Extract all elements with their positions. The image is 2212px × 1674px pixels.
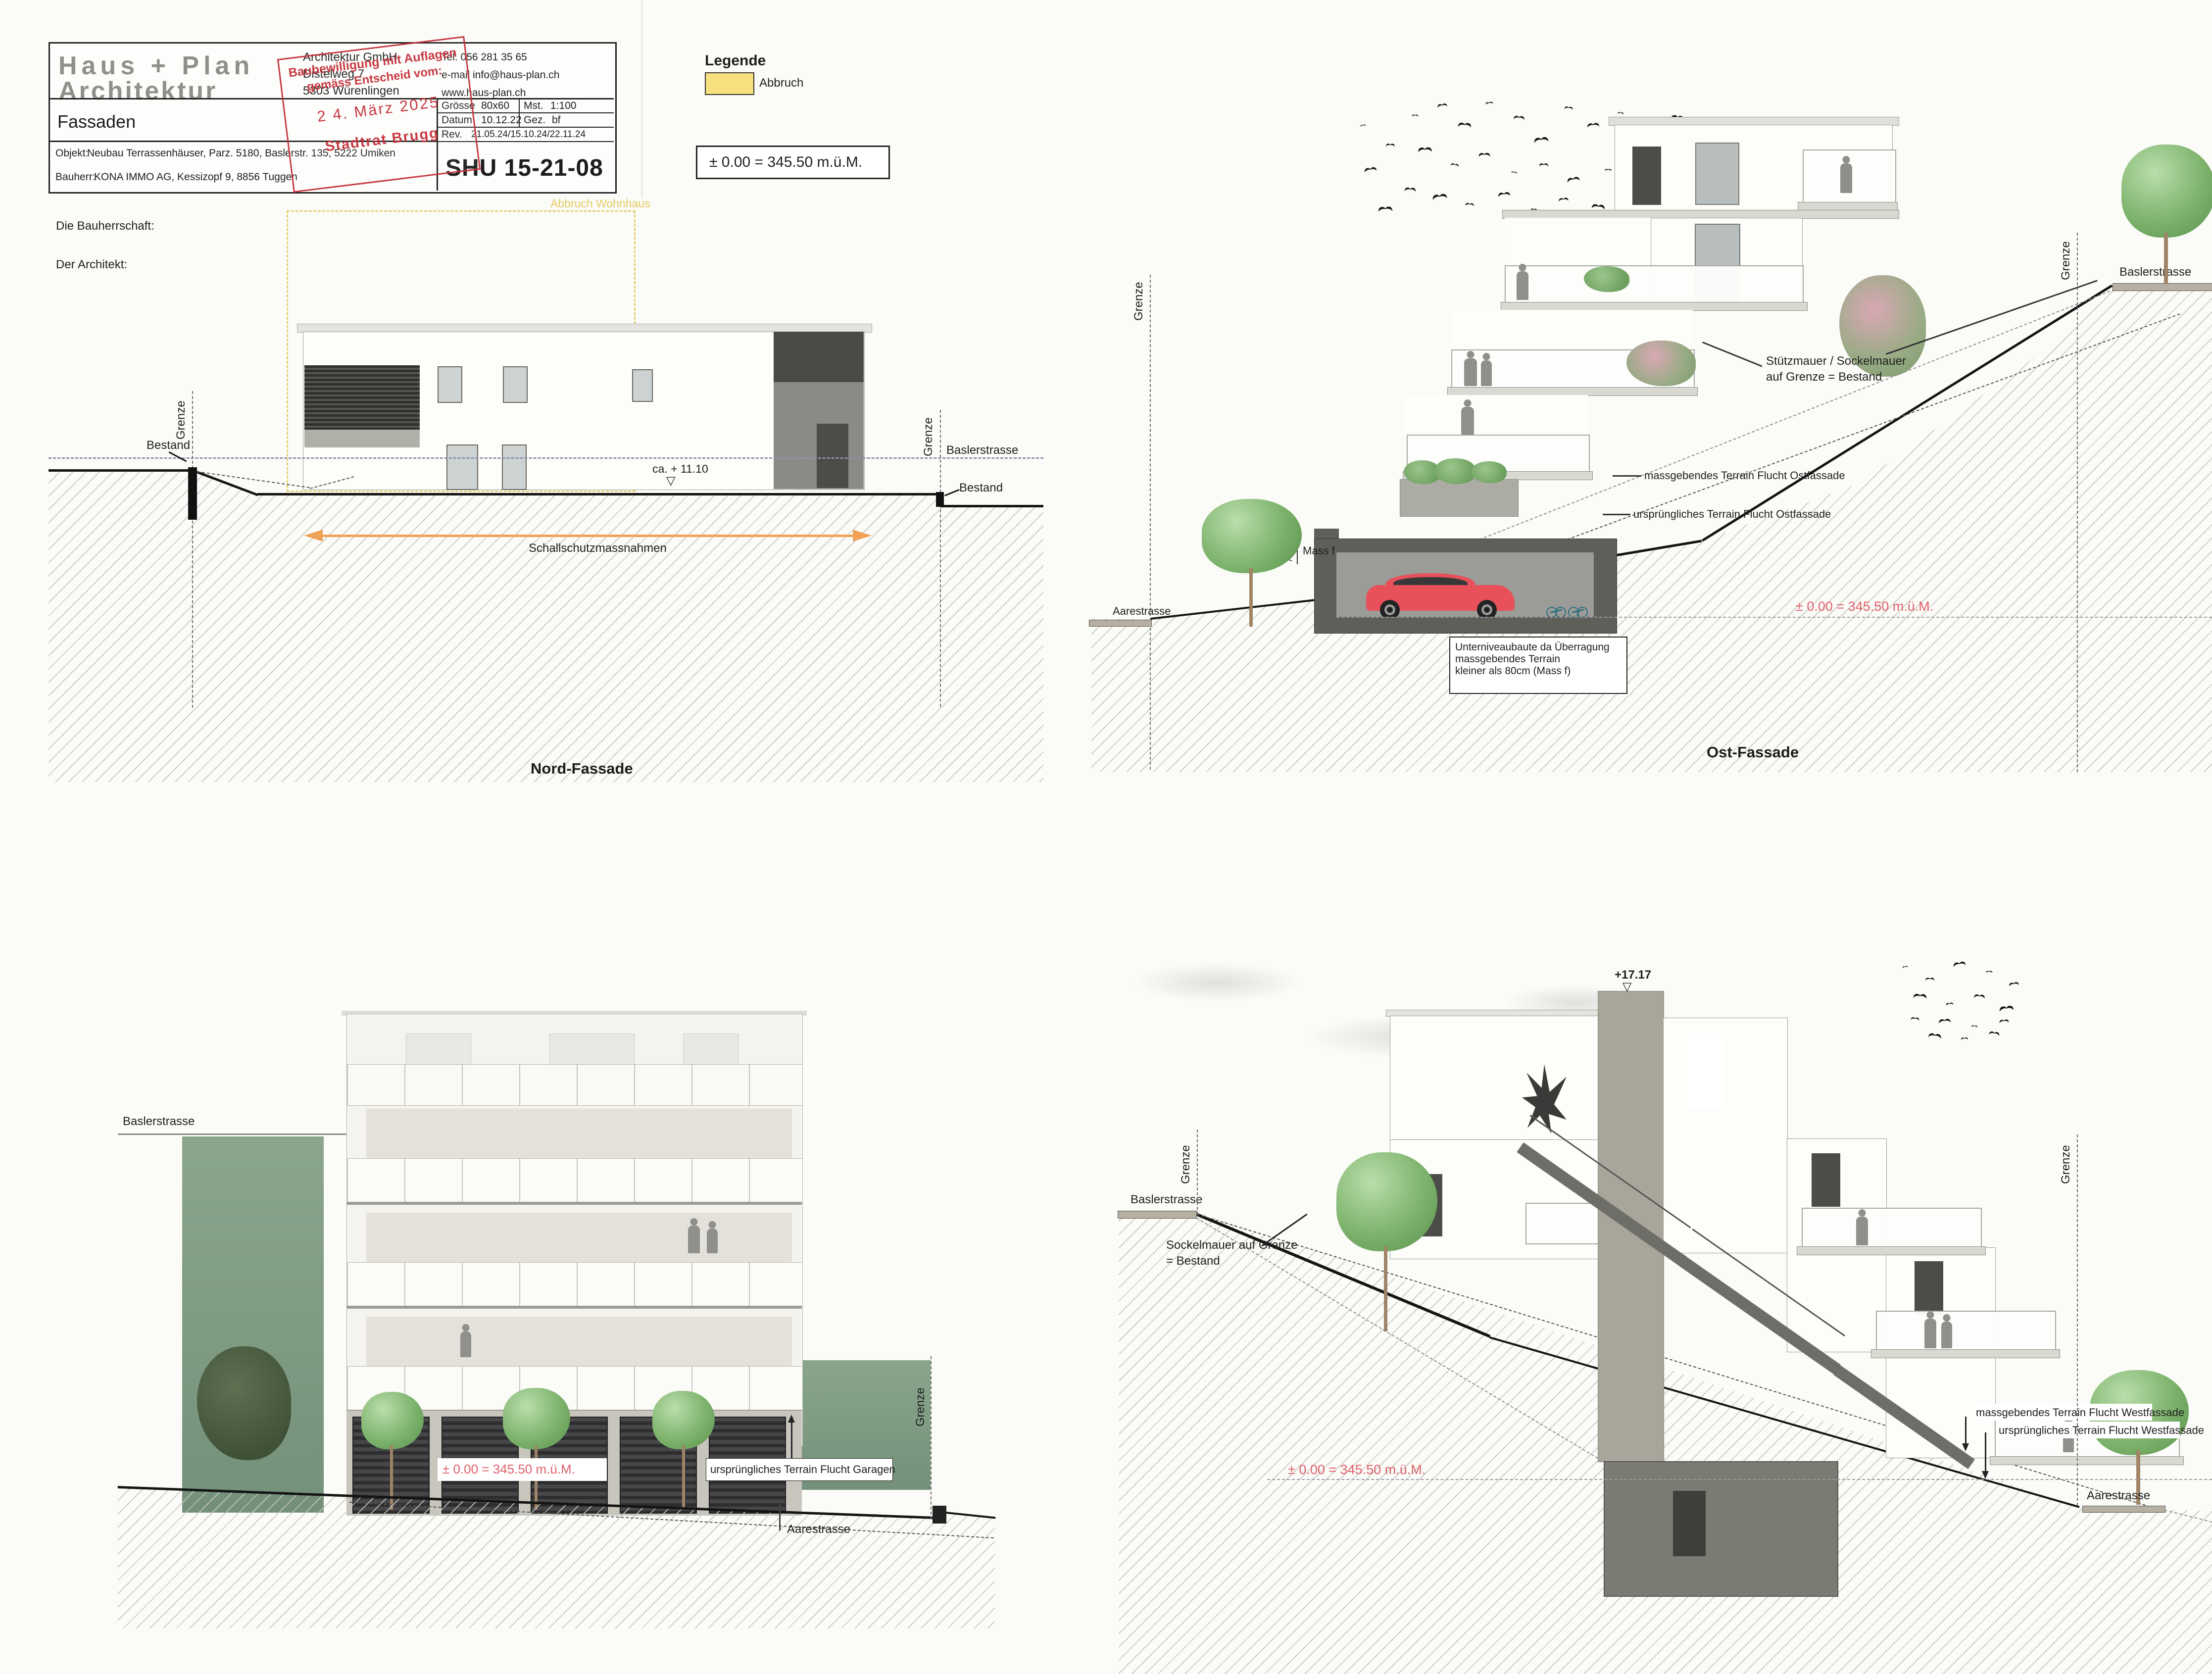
bird-icon <box>1479 153 1490 159</box>
westel-floor1-recess <box>366 1109 792 1158</box>
mst-value: 1:100 <box>550 100 577 112</box>
nord-dark-block-upper <box>774 332 864 382</box>
nord-grenze-left-label: Grenze <box>174 400 188 440</box>
westel-terrain-note-box: ursprüngliches Terrain Flucht Garagen <box>706 1458 893 1481</box>
bird-icon <box>1961 1037 1968 1041</box>
westel-wall-base <box>933 1506 946 1524</box>
bird-icon <box>1360 124 1366 128</box>
unterniveau-line2: massgebendes Terrain <box>1455 653 1622 665</box>
nord-grenze-right-label: Grenze <box>922 417 935 456</box>
unterniveau-note-box: Unterniveaubaute da Überragung massgeben… <box>1449 637 1627 694</box>
ost-baslerstrasse-road <box>2113 283 2212 291</box>
westel-baslerstrasse-label: Baslerstrasse <box>123 1115 195 1129</box>
westsec-door-3 <box>1915 1261 1943 1315</box>
westsec-terrace2-slab <box>1871 1349 2060 1358</box>
nord-window-2 <box>503 366 528 403</box>
stamp-authority: Stadtrat Brugg <box>289 121 475 159</box>
bird-icon <box>1514 115 1524 121</box>
westel-roof-railing <box>346 1064 803 1106</box>
level-reference-text: ± 0.00 = 345.50 m.ü.M. <box>709 154 862 171</box>
bird-icon <box>1953 961 1966 969</box>
tree-icon <box>2121 145 2212 238</box>
shrub-icon <box>1434 458 1476 484</box>
ost-level-line <box>1336 617 2212 618</box>
shrub-icon <box>1584 266 1629 292</box>
tree-trunk <box>2164 233 2168 284</box>
bird-icon <box>1450 163 1459 168</box>
nord-grenze-line-left <box>192 391 193 708</box>
bird-icon <box>1999 1005 2014 1014</box>
westsec-massgebend-label: massgebendes Terrain Flucht Westfassade <box>1976 1406 2184 1419</box>
ost-baslerstrasse-label: Baslerstrasse <box>2119 265 2191 279</box>
person-icon <box>1924 1319 1936 1348</box>
ost-top-door <box>1632 147 1661 205</box>
nord-cladding-base <box>304 430 420 447</box>
ost-grenze-right-label: Grenze <box>2059 241 2073 280</box>
company-logo: Haus + Plan Architektur <box>58 53 254 104</box>
bird-icon <box>1989 1031 2000 1037</box>
bird-icon <box>1986 971 1993 974</box>
schallschutz-label: Schallschutzmassnahmen <box>529 542 667 555</box>
westel-floor2-slab <box>346 1306 802 1309</box>
westel-floor1-railing <box>346 1158 803 1203</box>
nord-height-note: ca. + 11.10 <box>652 462 708 475</box>
bird-icon <box>1605 169 1611 172</box>
nord-bestand-post-left <box>188 467 197 520</box>
person-icon <box>1481 360 1492 386</box>
bicycle-icon-1 <box>1546 603 1566 618</box>
ost-massgebend-leader <box>1613 475 1641 477</box>
groesse-value: 80x60 <box>481 100 509 112</box>
sockelmauer-note-line2: = Bestand <box>1166 1254 1220 1268</box>
nord-cladding-band <box>304 365 420 430</box>
bauherrschaft-label: Die Bauherrschaft: <box>56 219 154 233</box>
bird-icon <box>1465 203 1474 208</box>
bird-icon <box>1364 167 1377 175</box>
westsec-urspruenglich-box: ursprüngliches Terrain Flucht Westfassad… <box>1997 1422 2180 1438</box>
architekt-label: Der Architekt: <box>56 258 127 272</box>
westsec-grenze-line-right <box>2077 1134 2078 1506</box>
bird-icon <box>1928 1033 1942 1041</box>
schallschutz-arrow-line <box>322 535 854 537</box>
westel-floor2-railing <box>346 1262 803 1307</box>
westel-grenze-label: Grenze <box>914 1387 928 1427</box>
legend-abbruch-label: Abbruch <box>759 76 803 90</box>
bird-icon <box>1567 176 1580 184</box>
westsec-grenze-left-label: Grenze <box>1179 1145 1193 1184</box>
sockelmauer-note-line1: Sockelmauer auf Grenze <box>1166 1238 1297 1252</box>
westsec-upper-body <box>1390 1016 1599 1140</box>
ost-massgebend-label: massgebendes Terrain Flucht Ostfassade <box>1644 469 1845 482</box>
westsec-top-door <box>1688 1034 1722 1108</box>
unterniveau-line3: kleiner als 80cm (Mass f) <box>1455 665 1622 677</box>
westel-floor2-recess <box>366 1213 792 1262</box>
nord-window-5 <box>502 444 527 490</box>
bird-icon <box>2009 982 2019 987</box>
bird-icon <box>1432 194 1447 202</box>
ost-grenze-left-label: Grenze <box>1132 282 1146 321</box>
objekt-label: Objekt: <box>55 148 89 159</box>
gez-label: Gez. <box>524 114 545 126</box>
westel-ground-hatch <box>118 1487 995 1628</box>
abbruch-note: Abbruch Wohnhaus <box>550 197 650 210</box>
bird-icon <box>1378 206 1393 214</box>
nord-street-level-line <box>49 457 1043 459</box>
shrub-icon <box>1626 341 1696 386</box>
westsec-terrace1-railing <box>1802 1208 1982 1248</box>
bicycle-frame <box>1550 609 1562 613</box>
logo-line1: Haus + Plan <box>58 53 254 79</box>
stuetzmauer-leader-1 <box>1702 342 1762 367</box>
ost-grenze-line-right <box>2077 233 2078 772</box>
bird-icon <box>1914 993 1927 1000</box>
stuetzmauer-note-line1: Stützmauer / Sockelmauer <box>1766 354 1906 368</box>
person-icon <box>460 1331 471 1357</box>
bird-icon <box>1925 978 1934 982</box>
westsec-urspruenglich-arrowhead <box>1982 1471 1989 1479</box>
westel-aarestrasse-label: Aarestrasse <box>787 1523 850 1536</box>
bird-icon <box>1974 994 1985 1000</box>
datum-value: 10.12.22 <box>481 114 522 126</box>
nord-window-4 <box>446 444 478 490</box>
ost-level-note: ± 0.00 = 345.50 m.ü.M. <box>1796 599 1933 614</box>
westsec-baslerstrasse-road <box>1118 1211 1197 1219</box>
nord-ground-hatch <box>49 469 1043 782</box>
ost-top-window <box>1695 143 1739 205</box>
person-icon <box>1840 163 1852 193</box>
westsec-level-note: ± 0.00 = 345.50 m.ü.M. <box>1288 1462 1426 1477</box>
westsec-basement <box>1604 1461 1838 1597</box>
westsec-terrace3-slab <box>1990 1456 2184 1465</box>
nord-title: Nord-Fassade <box>531 760 633 778</box>
nord-terrain-line-2 <box>257 493 938 495</box>
tree-trunk <box>682 1445 685 1510</box>
westel-grenze-line <box>931 1356 932 1520</box>
ost-grenze-line-left <box>1150 275 1151 770</box>
person-icon <box>688 1226 700 1253</box>
westsec-balustrade <box>1525 1203 1601 1244</box>
westsec-grenze-right-label: Grenze <box>2059 1145 2073 1184</box>
westsec-stepped-body-1 <box>1663 1018 1788 1253</box>
ost-urspruenglich-leader <box>1603 514 1630 515</box>
person-icon <box>1517 271 1528 300</box>
westsec-aarestrasse-road <box>2082 1506 2165 1513</box>
westsec-terrace1-slab <box>1797 1246 1986 1255</box>
westel-terrain-note-arrow-line <box>791 1422 792 1458</box>
westsec-basement-door <box>1673 1491 1706 1556</box>
nord-window-1 <box>438 366 462 403</box>
bird-icon <box>1559 197 1569 203</box>
mst-label: Mst. <box>524 100 543 112</box>
legend-heading: Legende <box>705 52 766 70</box>
bird-icon <box>1539 163 1548 168</box>
bird-icon <box>1587 123 1599 130</box>
bird-icon <box>1618 112 1624 115</box>
nord-grenze-line-right <box>940 410 941 707</box>
westsec-urspruenglich-arrow-line <box>1985 1432 1986 1472</box>
plan-sheet: Haus + Plan Architektur Architektur GmbH… <box>0 0 2212 1674</box>
bird-icon <box>1999 1019 2009 1025</box>
person-icon <box>1941 1322 1952 1348</box>
ost-aarestrasse-road <box>1089 620 1152 627</box>
tree-trunk <box>1384 1246 1387 1331</box>
westsec-massgebend-arrow-line <box>1965 1417 1966 1444</box>
person-icon <box>1461 407 1474 435</box>
mass-f-label: Mass f <box>1303 544 1335 557</box>
bauherr-label: Bauherr: <box>55 171 96 183</box>
westsec-peak-level: +17.17 <box>1615 968 1651 982</box>
bird-icon <box>1911 1017 1919 1022</box>
ost-aarestrasse-label: Aarestrasse <box>1113 605 1171 617</box>
bird-icon <box>1418 147 1432 154</box>
westsec-peak-marker: ▽ <box>1622 980 1631 994</box>
bird-icon <box>1946 1002 1954 1007</box>
level-reference-box: ± 0.00 = 345.50 m.ü.M. <box>696 146 890 179</box>
nord-bestand-left-label: Bestand <box>147 439 190 452</box>
westsec-massgebend-arrowhead <box>1962 1443 1969 1451</box>
tree-trunk <box>1249 568 1253 627</box>
stuetzmauer-note-line2: auf Grenze = Bestand <box>1766 370 1882 384</box>
bicycle-icon-2 <box>1568 603 1588 618</box>
logo-line2: Architektur <box>58 79 254 104</box>
westel-terrain-note: ursprüngliches Terrain Flucht Garagen <box>710 1463 895 1476</box>
nord-terrain-line-3 <box>940 505 1043 507</box>
approval-stamp: Baubewilligung mit Auflagen gemäss Entsc… <box>277 36 481 193</box>
ost-floor1-wall <box>1406 395 1588 435</box>
document-title: Fassaden <box>57 111 136 132</box>
nord-baslerstrasse-label: Baslerstrasse <box>946 443 1018 457</box>
person-icon <box>707 1229 718 1253</box>
bird-icon <box>1564 106 1573 111</box>
nord-bestand-right-leader <box>944 489 960 496</box>
westel-floor1-slab <box>346 1202 802 1205</box>
bird-icon <box>1485 101 1493 106</box>
nord-terrain-line-1 <box>49 469 193 472</box>
person-icon <box>1856 1217 1868 1245</box>
bird-icon <box>1386 144 1395 148</box>
schallschutz-arrowhead-left <box>304 530 323 542</box>
westel-level-box: ± 0.00 = 345.50 m.ü.M. <box>438 1458 607 1481</box>
abbruch-swatch <box>705 72 754 95</box>
westel-aarestrasse-leader <box>779 1503 781 1530</box>
westel-terrain-note-arrowhead <box>788 1415 795 1423</box>
cloud-icon <box>1133 963 1302 1002</box>
gez-value: bf <box>552 114 561 126</box>
ost-planter-box <box>1400 479 1519 517</box>
westsec-urspruenglich-label: ursprüngliches Terrain Flucht Westfassad… <box>1999 1424 2204 1436</box>
bird-icon <box>1437 103 1448 109</box>
bird-icon <box>1511 171 1517 175</box>
nord-bestand-right-label: Bestand <box>959 481 1003 495</box>
nord-bestand-post-right <box>936 492 944 507</box>
stamp-date: 2 4. März 2025 <box>285 89 472 129</box>
westel-level-note: ± 0.00 = 345.50 m.ü.M. <box>442 1462 575 1477</box>
shrub-icon <box>1471 461 1507 483</box>
westsec-aarestrasse-label: Aarestrasse <box>2087 1489 2150 1503</box>
bird-icon <box>1902 966 1908 969</box>
bird-icon <box>1458 122 1472 129</box>
westsec-door-2 <box>1812 1153 1840 1207</box>
westsec-baslerstrasse-label: Baslerstrasse <box>1131 1193 1202 1207</box>
bird-icon <box>1534 137 1548 145</box>
westel-street-line <box>118 1133 351 1135</box>
nord-entrance-door <box>817 424 848 488</box>
person-icon <box>1464 358 1477 386</box>
bird-icon <box>1498 192 1510 198</box>
westsec-terrace2-railing <box>1876 1311 2056 1351</box>
ost-garage-floor <box>1336 617 1594 624</box>
westel-floor3-recess <box>366 1317 792 1366</box>
ost-title: Ost-Fassade <box>1707 743 1799 761</box>
page-fold-line <box>641 0 642 198</box>
bird-icon <box>1405 187 1416 193</box>
bird-icon <box>1971 1025 1978 1029</box>
bird-icon <box>1939 1019 1951 1026</box>
bicycle-frame <box>1572 609 1584 613</box>
nord-level-marker: ▽ <box>666 474 675 488</box>
bauherr-value: KONA IMMO AG, Kessizopf 9, 8856 Tuggen <box>94 171 297 183</box>
nord-window-3 <box>632 369 653 402</box>
schallschutz-arrowhead-right <box>853 530 872 542</box>
ost-terrace3-railing <box>1505 265 1804 304</box>
westsec-level-line <box>1267 1479 2212 1480</box>
nord-bestand-left-leader <box>169 451 187 462</box>
ost-urspruenglich-label: ursprüngliches Terrain Flucht Ostfassade <box>1633 508 1831 520</box>
bird-icon <box>1412 114 1419 118</box>
rev-value: 21.05.24/15.10.24/22.11.24 <box>471 129 586 140</box>
unterniveau-line1: Unterniveaubaute da Überragung <box>1455 641 1622 653</box>
westsec-grenze-line-left <box>1197 1130 1198 1215</box>
westsec-massgebend-box: massgebendes Terrain Flucht Westfassade <box>1974 1404 2152 1421</box>
